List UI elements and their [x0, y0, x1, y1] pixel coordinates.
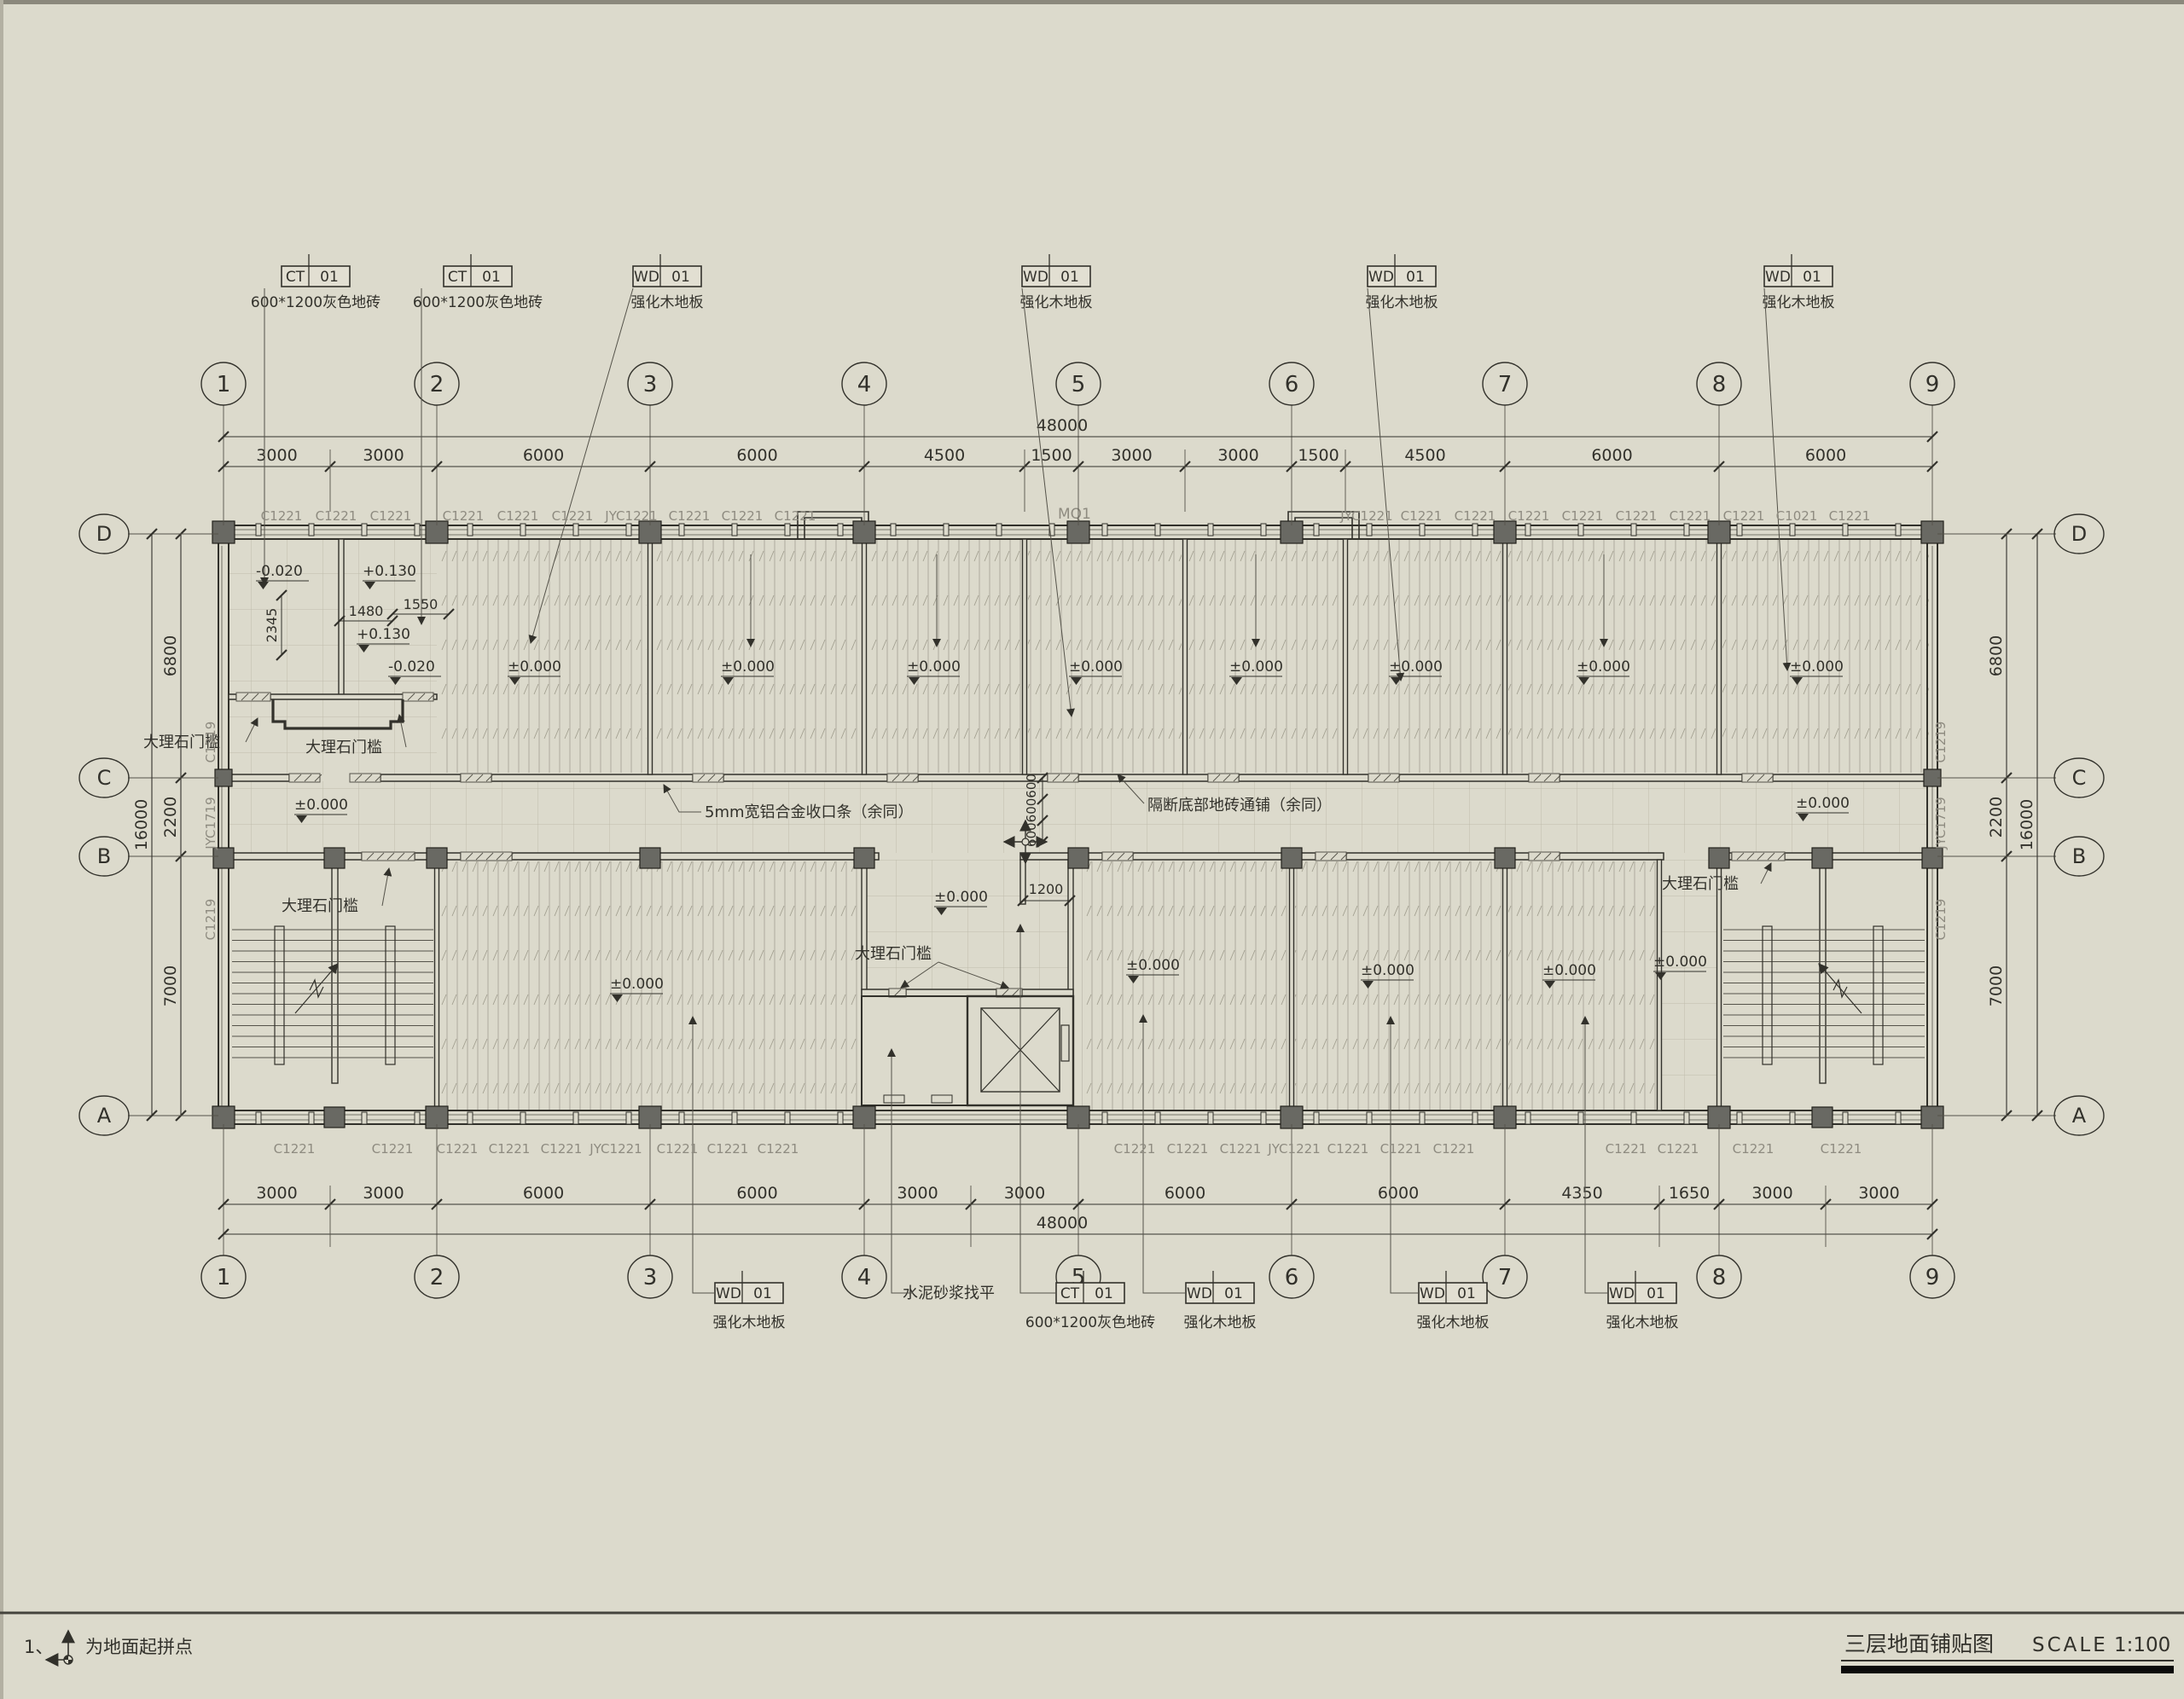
window-tag: C1221: [489, 1141, 531, 1157]
window-mullion: [415, 1112, 420, 1124]
window-tag: C1221: [1562, 508, 1604, 524]
window-tag: C1221: [1723, 508, 1765, 524]
column: [427, 848, 447, 868]
window-mullion: [1896, 1112, 1901, 1124]
finish-tag-label: 强化木地板: [1606, 1314, 1679, 1331]
dim-text: 7000: [1987, 965, 2006, 1006]
window-tag: C1221: [1733, 1141, 1774, 1157]
curtain-wall-tag: MQ1: [1058, 506, 1091, 523]
window-mullion: [1472, 524, 1478, 536]
elevator-door: [1061, 1025, 1069, 1061]
finish-tag-number: 01: [320, 269, 339, 286]
generated-plan: MQ1112233445566778899DDCCBBAA30003000600…: [0, 0, 2184, 1699]
window-tag: C1221: [707, 1141, 749, 1157]
lobby-bottom-wall: [862, 989, 889, 996]
window-tag: C1221: [443, 508, 485, 524]
window-tag: C1221: [1616, 508, 1658, 524]
annotation-text: 大理石门槛: [282, 897, 358, 915]
window-mullion: [468, 524, 473, 536]
partition-wall: [1717, 539, 1722, 774]
window-mullion: [468, 1112, 473, 1124]
window-mullion: [1843, 1112, 1848, 1124]
grid-bubble-label: 4: [857, 372, 872, 397]
dim-text: 6000: [1805, 446, 1846, 465]
grid-bubble-label: 9: [1926, 1265, 1940, 1290]
dim-text: 6800: [161, 635, 180, 676]
window-mullion: [626, 1112, 631, 1124]
dim-text: 2200: [161, 797, 180, 838]
partition-wall: [1290, 860, 1294, 1110]
window-tag: C1221: [1433, 1141, 1475, 1157]
window-mullion: [1843, 524, 1848, 536]
corridor-wall-c: [723, 774, 887, 781]
window-tag: C1221: [261, 508, 303, 524]
column: [324, 1107, 345, 1128]
grid-bubble-label: 7: [1498, 1265, 1513, 1290]
window-mullion: [996, 524, 1002, 536]
stair-handrail: [275, 926, 284, 1064]
dim-text: 3000: [256, 1184, 297, 1203]
window-mullion: [1684, 1112, 1689, 1124]
finish-note-label: 水泥砂浆找平: [903, 1284, 995, 1302]
grid-bubble-label: D: [2071, 522, 2087, 546]
finish-tag-code: WD: [1368, 269, 1394, 286]
grid-bubble-label: C: [2072, 766, 2087, 790]
level-value: ±0.000: [1542, 962, 1596, 979]
finish-tag-label: 强化木地板: [1184, 1314, 1257, 1331]
window-tag: C1221: [1455, 508, 1496, 524]
dim-text: 48000: [1037, 1214, 1088, 1232]
dim-text: 3000: [363, 446, 404, 465]
grid-bubble-label: A: [2072, 1104, 2087, 1128]
dim-text: 6000: [523, 446, 564, 465]
dim-text: 6800: [1987, 635, 2006, 676]
window-tag: C1219: [1933, 722, 1949, 763]
corridor-wall-c: [1560, 774, 1742, 781]
wood-floor: [1722, 539, 1929, 773]
corridor-wall-c: [491, 774, 693, 781]
column: [1812, 1107, 1833, 1128]
window-mullion: [679, 524, 684, 536]
window-mullion: [1737, 524, 1742, 536]
start-point-icon: [1022, 838, 1029, 845]
window-mullion: [1367, 524, 1372, 536]
dim-text: 1500: [1031, 446, 1072, 465]
window-mullion: [520, 524, 526, 536]
scale-label: SCALE: [2032, 1634, 2108, 1656]
partition-wall: [1717, 860, 1722, 1110]
window-tag: JYC1221: [1267, 1141, 1320, 1157]
finish-tag-code: WD: [1187, 1285, 1212, 1302]
window-tag: C1221: [372, 1141, 414, 1157]
window-mullion: [362, 1112, 367, 1124]
window-mullion: [838, 524, 843, 536]
grid-bubble-label: 8: [1712, 372, 1727, 397]
finish-tag-label: 600*1200灰色地砖: [1025, 1314, 1155, 1331]
grid-bubble-label: 3: [643, 1265, 658, 1290]
partition-wall: [1503, 539, 1507, 774]
column: [640, 848, 660, 868]
finish-tag-label: 600*1200灰色地砖: [413, 294, 543, 311]
column: [1495, 848, 1515, 868]
grid-bubble-label: 1: [217, 1265, 231, 1290]
grid-bubble-label: 1: [217, 372, 231, 397]
window-tag: C1221: [1508, 508, 1550, 524]
window-mullion: [1155, 1112, 1160, 1124]
column: [1922, 848, 1943, 868]
window-mullion: [732, 524, 737, 536]
window-mullion: [1155, 524, 1160, 536]
level-value: -0.020: [388, 658, 435, 676]
grid-bubble-label: D: [96, 522, 112, 546]
note-text: 为地面起拼点: [85, 1637, 193, 1657]
finish-tag-code: WD: [1023, 269, 1048, 286]
grid-bubble-label: A: [97, 1104, 112, 1128]
window-tag: C1221: [1829, 508, 1871, 524]
window-tag: C1221: [669, 508, 711, 524]
entrance-porch-wall: [229, 694, 236, 699]
window-mullion: [679, 1112, 684, 1124]
window-tag: C1221: [1670, 508, 1711, 524]
finish-tag-label: 强化木地板: [713, 1314, 786, 1331]
dim-text: 16000: [132, 799, 151, 850]
window-tag: C1221: [437, 1141, 479, 1157]
stair-handrail: [1873, 926, 1883, 1064]
corridor-wall-c: [380, 774, 461, 781]
window-tag: C1221: [1658, 1141, 1699, 1157]
finish-tag-code: WD: [716, 1285, 741, 1302]
dim-text: 4500: [1404, 446, 1445, 465]
sheet-top-edge: [0, 0, 2184, 4]
window-mullion: [1208, 1112, 1213, 1124]
finish-tag-number: 01: [1060, 269, 1079, 286]
window-mullion: [1578, 524, 1583, 536]
window-mullion: [838, 1112, 843, 1124]
level-value: ±0.000: [721, 658, 775, 676]
window-mullion: [520, 1112, 526, 1124]
window-mullion: [785, 524, 790, 536]
finish-tag-number: 01: [1457, 1285, 1476, 1302]
window-tag: C1221: [316, 508, 357, 524]
level-value: -0.020: [256, 563, 303, 580]
dim-text: 1550: [404, 596, 439, 612]
tile-floor: [865, 860, 1068, 989]
finish-tag-label: 强化木地板: [631, 294, 704, 311]
column: [854, 848, 874, 868]
window-mullion: [944, 524, 949, 536]
partition-wall: [863, 539, 867, 774]
window-mullion: [362, 524, 367, 536]
dim-text: 3000: [1858, 1184, 1899, 1203]
dim-text: 6000: [736, 1184, 777, 1203]
partition-wall: [1503, 860, 1507, 1110]
column: [213, 848, 234, 868]
finish-tag-number: 01: [1406, 269, 1425, 286]
tile-floor: [1662, 860, 1716, 1110]
corridor-wall-b: [1560, 853, 1664, 860]
finish-tag-code: WD: [1420, 1285, 1445, 1302]
window-mullion: [1102, 524, 1107, 536]
dim-text: 1480: [349, 603, 384, 619]
corridor-wall-c: [1399, 774, 1529, 781]
grid-bubble-label: 7: [1498, 372, 1513, 397]
finish-tag-label: 600*1200灰色地砖: [251, 294, 380, 311]
window-tag: C1221: [1401, 508, 1443, 524]
dim-text: 3000: [363, 1184, 404, 1203]
dim-text: 3000: [1751, 1184, 1792, 1203]
corridor-wall-b: [1020, 853, 1102, 860]
corridor-wall-c: [1078, 774, 1208, 781]
window-tag: JYC1719: [203, 797, 218, 849]
dim-text: 6000: [1165, 1184, 1205, 1203]
wood-floor: [1508, 539, 1716, 773]
corridor-wall-c: [1239, 774, 1368, 781]
annotation-text: 大理石门槛: [855, 945, 932, 963]
stair-handrail: [386, 926, 395, 1064]
window-mullion: [732, 1112, 737, 1124]
window-mullion: [1261, 1112, 1266, 1124]
window-tag: C1221: [775, 508, 816, 524]
finish-tag-number: 01: [1803, 269, 1821, 286]
level-value: ±0.000: [1389, 658, 1443, 676]
level-value: ±0.000: [294, 797, 348, 814]
window-mullion: [1102, 1112, 1107, 1124]
dim-text: 48000: [1037, 416, 1088, 435]
window-mullion: [309, 1112, 314, 1124]
window-tag: C1221: [497, 508, 539, 524]
annotation-text: 5mm宽铝合金收口条（余同）: [705, 803, 914, 821]
finish-tag-code: WD: [1765, 269, 1791, 286]
window-tag: C1221: [657, 1141, 699, 1157]
grid-bubble-label: 8: [1712, 1265, 1727, 1290]
grid-bubble-label: 2: [430, 1265, 444, 1290]
finish-tag-code: CT: [286, 269, 305, 286]
window-mullion: [1631, 1112, 1636, 1124]
grid-bubble-label: B: [97, 844, 111, 868]
level-value: ±0.000: [1069, 658, 1123, 676]
dim-text: 2345: [264, 608, 280, 643]
dim-text: 6000: [736, 446, 777, 465]
finish-tag-number: 01: [1647, 1285, 1665, 1302]
general-note: 1、 为地面起拼点: [24, 1631, 193, 1664]
dim-text: 3000: [897, 1184, 938, 1203]
window-mullion: [626, 524, 631, 536]
window-tag: JYC1221: [589, 1141, 642, 1157]
title-block: 三层地面铺贴图 SCALE 1:100: [1841, 1632, 2174, 1673]
window-mullion: [1208, 524, 1213, 536]
wood-floor: [868, 539, 1021, 773]
column: [1068, 848, 1089, 868]
level-value: ±0.000: [610, 976, 664, 993]
lobby-wall: [1068, 860, 1073, 994]
window-mullion: [1684, 524, 1689, 536]
dim-text: 3000: [1111, 446, 1152, 465]
level-value: ±0.000: [508, 658, 561, 676]
window-mullion: [785, 1112, 790, 1124]
finish-tag-number: 01: [1095, 1285, 1113, 1302]
finish-tag-label: 强化木地板: [1366, 294, 1438, 311]
wood-floor: [1349, 539, 1501, 773]
window-tag: JYC1221: [604, 508, 657, 524]
partition-wall: [1344, 539, 1348, 774]
window-tag: C1221: [1167, 1141, 1209, 1157]
window-mullion: [891, 524, 896, 536]
partition-wall: [1658, 860, 1662, 1110]
wood-floor: [1295, 861, 1501, 1110]
dim-text: 1500: [1298, 446, 1339, 465]
window-mullion: [1420, 1112, 1425, 1124]
window-tag: C1219: [203, 722, 218, 763]
dim-text: 2200: [1987, 797, 2006, 838]
window-tag: C1221: [1114, 1141, 1156, 1157]
finish-tag-number: 01: [482, 269, 501, 286]
window-tag: C1221: [274, 1141, 316, 1157]
corridor-wall-b: [512, 853, 879, 860]
window-tag: C1221: [1220, 1141, 1262, 1157]
window-tag: C1219: [1933, 899, 1949, 941]
window-mullion: [1896, 524, 1901, 536]
wood-floor: [653, 539, 861, 773]
store-room: [862, 996, 967, 1105]
finish-tag-number: 01: [753, 1285, 772, 1302]
column: [324, 848, 345, 868]
lobby-wall: [862, 860, 867, 994]
level-value: ±0.000: [907, 658, 961, 676]
corridor-wall-c: [1773, 774, 1927, 781]
wood-floor: [1188, 539, 1342, 773]
level-value: ±0.000: [934, 889, 988, 906]
window-mullion: [1367, 1112, 1372, 1124]
level-value: +0.130: [357, 626, 410, 643]
dim-text: 3000: [256, 446, 297, 465]
window-tag: C1221: [1821, 1141, 1862, 1157]
title-bar: [1841, 1666, 2174, 1673]
window-mullion: [256, 1112, 261, 1124]
stair-spine-wall: [332, 860, 338, 1083]
window-tag: C1221: [552, 508, 594, 524]
finish-tag-leader: [892, 1049, 913, 1293]
annotation-text: 隔断底部地砖通铺（余同）: [1147, 797, 1332, 815]
wood-floor: [440, 539, 647, 773]
window-tag: C1221: [541, 1141, 583, 1157]
wood-floor: [1508, 861, 1656, 1110]
window-mullion: [1525, 1112, 1531, 1124]
grid-bubble-label: 9: [1926, 372, 1940, 397]
finish-tag-number: 01: [1224, 1285, 1243, 1302]
level-value: ±0.000: [1577, 658, 1630, 676]
window-mullion: [415, 524, 420, 536]
grid-bubble-label: 5: [1072, 372, 1086, 397]
window-tag: C1221: [758, 1141, 799, 1157]
window-tag: C1221: [1606, 1141, 1647, 1157]
partition-wall: [1023, 539, 1027, 774]
dim-text: 3000: [1217, 446, 1258, 465]
partition-wall: [1183, 539, 1188, 774]
floor-plan-drawing: MQ1112233445566778899DDCCBBAA30003000600…: [0, 0, 2184, 1699]
note-number: 1、: [24, 1637, 53, 1657]
window-mullion: [1420, 524, 1425, 536]
partition-wall: [435, 860, 439, 1110]
annotation-leader: [382, 868, 389, 906]
grid-bubble-label: 4: [857, 1265, 872, 1290]
finish-tag-code: WD: [634, 269, 659, 286]
finish-tag-number: 01: [671, 269, 690, 286]
corridor-wall-c: [229, 774, 289, 781]
window-mullion: [1737, 1112, 1742, 1124]
window-mullion: [1578, 1112, 1583, 1124]
scale-value: 1:100: [2114, 1634, 2170, 1656]
wood-floor: [1028, 539, 1182, 773]
level-value: ±0.000: [1229, 658, 1283, 676]
dim-text: 16000: [2018, 799, 2036, 850]
entrance-porch-wall: [270, 694, 406, 699]
grid-bubble-label: 3: [643, 372, 658, 397]
dim-text: 1200: [1029, 881, 1064, 897]
level-value: ±0.000: [1790, 658, 1844, 676]
grid-bubble-label: 6: [1285, 372, 1299, 397]
sheet-left-edge: [0, 0, 3, 1699]
grid-bubble-label: 6: [1285, 1265, 1299, 1290]
window-tag: JYC1221: [1339, 508, 1392, 524]
window-mullion: [1472, 1112, 1478, 1124]
window-mullion: [1314, 524, 1319, 536]
window-mullion: [1790, 1112, 1795, 1124]
finish-tag-code: WD: [1609, 1285, 1635, 1302]
annotation-leader: [1761, 863, 1771, 884]
window-mullion: [1790, 524, 1795, 536]
window-mullion: [1525, 524, 1531, 536]
dim-text: 6000: [1378, 1184, 1419, 1203]
grid-bubble-label: B: [2072, 844, 2086, 868]
level-value: ±0.000: [1796, 795, 1850, 812]
tile-floor: [229, 781, 1927, 853]
dim-text: 4500: [924, 446, 965, 465]
window-tag: C1021: [1776, 508, 1818, 524]
window-mullion: [309, 524, 314, 536]
level-value: ±0.000: [1126, 957, 1180, 974]
dim-text: 4350: [1561, 1184, 1602, 1203]
door-leaf: [932, 1095, 952, 1103]
window-mullion: [256, 524, 261, 536]
window-mullion: [1261, 524, 1266, 536]
window-tag: C1221: [370, 508, 412, 524]
dim-text: 6000: [1591, 446, 1632, 465]
dim-text: 1650: [1669, 1184, 1710, 1203]
finish-tag-code: CT: [1060, 1285, 1080, 1302]
annotation-text: 大理石门槛: [305, 739, 382, 757]
level-value: ±0.000: [1361, 962, 1414, 979]
window-tag: C1221: [722, 508, 764, 524]
column: [1709, 848, 1729, 868]
window-tag: JYC1719: [1933, 797, 1949, 849]
window-tag: C1219: [203, 899, 218, 941]
window-mullion: [1314, 1112, 1319, 1124]
finish-tag-label: 强化木地板: [1020, 294, 1093, 311]
stair-spine-wall: [1820, 860, 1826, 1083]
window-mullion: [1631, 524, 1636, 536]
finish-tag-label: 强化木地板: [1417, 1314, 1490, 1331]
door-leaf: [884, 1095, 904, 1103]
finish-tag-code: CT: [448, 269, 468, 286]
grid-bubble-label: 2: [430, 372, 444, 397]
grid-bubble-label: C: [97, 766, 112, 790]
column: [1812, 848, 1833, 868]
column: [1281, 848, 1302, 868]
window-mullion: [573, 524, 578, 536]
level-value: ±0.000: [1653, 954, 1707, 971]
dim-text: 6000: [523, 1184, 564, 1203]
partition-wall: [648, 539, 653, 774]
